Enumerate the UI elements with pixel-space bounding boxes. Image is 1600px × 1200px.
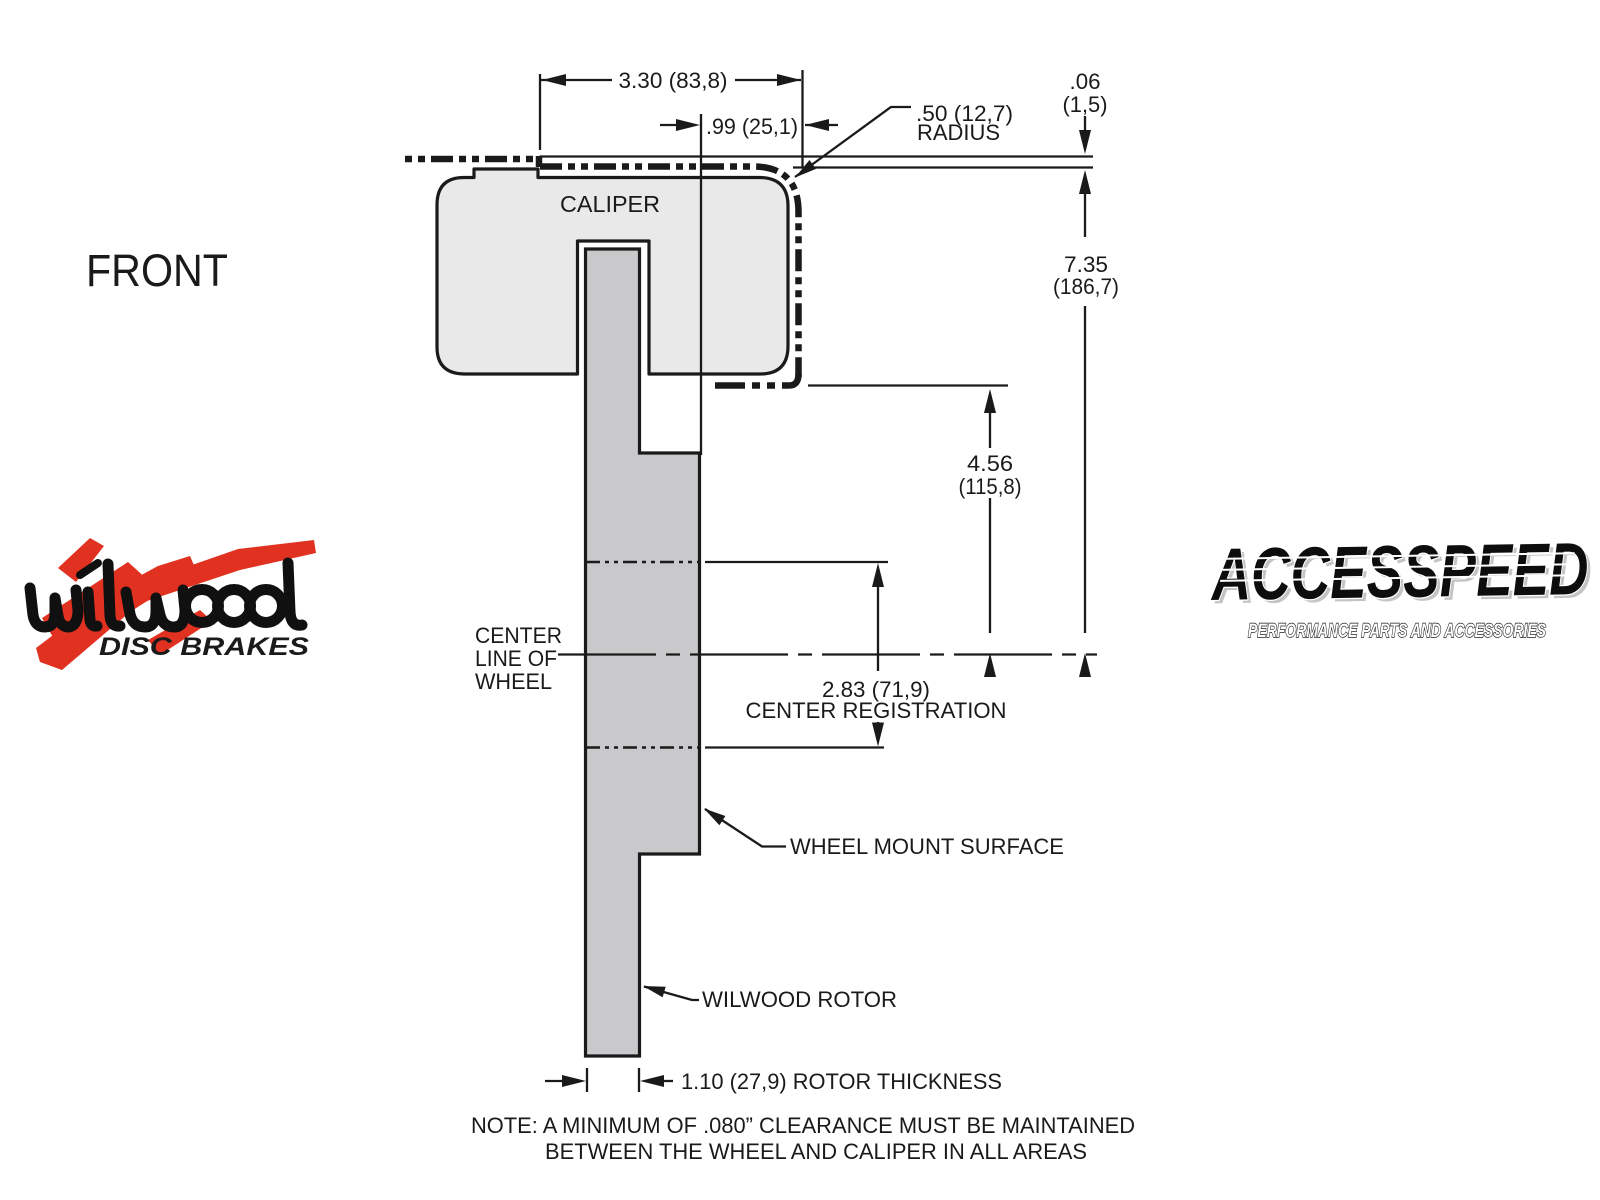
svg-text:.99 (25,1): .99 (25,1)	[706, 114, 798, 139]
svg-text:4.56: 4.56	[967, 451, 1013, 476]
svg-text:NOTE: A MINIMUM OF .080” CLEAR: NOTE: A MINIMUM OF .080” CLEARANCE MUST …	[471, 1113, 1135, 1138]
svg-text:3.30 (83,8): 3.30 (83,8)	[619, 68, 728, 93]
svg-text:RADIUS: RADIUS	[917, 120, 1000, 145]
svg-text:DISC BRAKES: DISC BRAKES	[99, 633, 309, 661]
svg-text:CENTER REGISTRATION: CENTER REGISTRATION	[746, 698, 1007, 723]
svg-text:(186,7): (186,7)	[1053, 274, 1119, 299]
svg-text:WHEEL MOUNT SURFACE: WHEEL MOUNT SURFACE	[790, 834, 1064, 859]
svg-text:WHEEL: WHEEL	[475, 669, 552, 694]
svg-text:ACCESSPEED: ACCESSPEED	[1209, 527, 1589, 616]
svg-text:FRONT: FRONT	[86, 245, 228, 296]
svg-text:CENTER: CENTER	[475, 623, 562, 648]
svg-text:1.10 (27,9) ROTOR THICKNESS: 1.10 (27,9) ROTOR THICKNESS	[681, 1069, 1002, 1094]
svg-text:(1,5): (1,5)	[1063, 92, 1108, 117]
svg-text:PERFORMANCE PARTS AND ACCESSOR: PERFORMANCE PARTS AND ACCESSORIES	[1248, 621, 1546, 642]
svg-text:LINE OF: LINE OF	[475, 646, 557, 671]
svg-text:(115,8): (115,8)	[959, 474, 1022, 499]
svg-text:CALIPER: CALIPER	[560, 191, 660, 217]
svg-text:.06: .06	[1070, 69, 1101, 94]
svg-text:BETWEEN THE WHEEL AND CALIPER: BETWEEN THE WHEEL AND CALIPER IN ALL ARE…	[545, 1139, 1087, 1164]
svg-text:WILWOOD ROTOR: WILWOOD ROTOR	[702, 987, 897, 1012]
